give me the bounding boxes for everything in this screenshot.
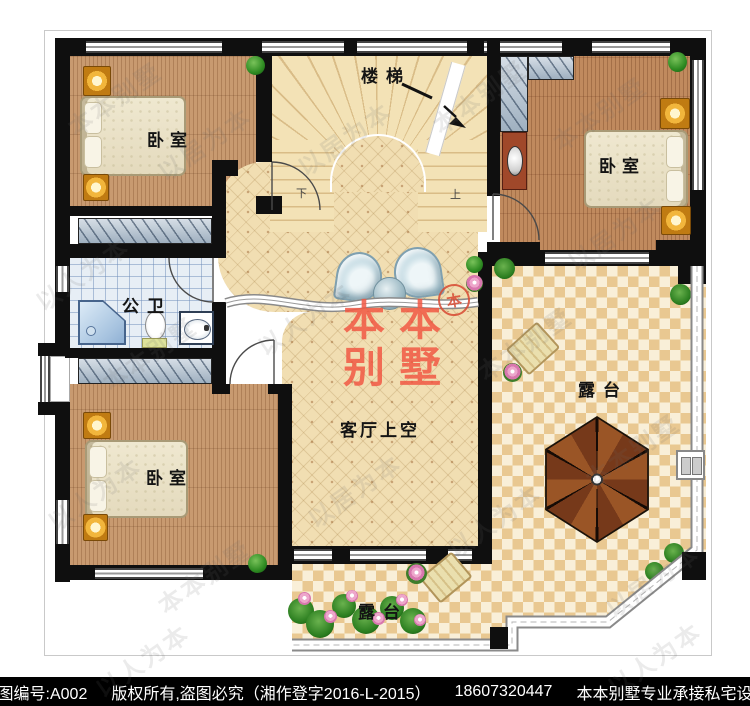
closet-strip-north [78,218,212,244]
wall-pier-terrace-ne2 [678,258,706,284]
copyright-notice: 版权所有,盗图必究（湘作登字2016-L-2015） [111,680,430,704]
nightstand-lamp [83,412,111,439]
pillow [89,480,107,512]
room-label-bedroom: 卧室 [129,464,209,489]
pillow [666,170,684,202]
window-terrace-north [545,252,649,264]
bay-window-glass [40,356,50,402]
window-top-1 [86,41,222,53]
sink-faucet [204,325,209,331]
company-slogan: 本本别墅专业承接私宅设计 [576,680,750,704]
side-table-flower [406,563,427,584]
closet-vertical [500,56,528,132]
outdoor-unit [676,450,705,480]
stair-mark-up: 上 [450,186,461,202]
wall-bath-east-lower [212,302,226,386]
phone-number: 18607320447 [455,683,553,701]
stair-mark-down: 下 [296,185,307,201]
floor-plan-sheet: 楼梯 卧室 卧室 卧室 公卫 客厅上空 露台 露台 下 上 本本别墅以居为本以人… [0,0,750,706]
potted-plant [668,52,687,72]
bay-window-bottom [38,402,70,415]
closet-horizontal [528,56,574,80]
window-top-3 [357,41,467,53]
pillow [666,136,684,168]
pillow [89,446,107,478]
potted-plant [246,56,265,75]
window-top-2 [262,41,344,53]
wall-bedroom2-west [487,38,500,196]
window-void-south-2 [350,549,426,561]
room-label-bedroom: 卧室 [130,126,210,151]
dresser-bowl [507,146,523,176]
pillow [84,102,102,134]
wall-bedroom1-south [65,206,214,216]
window-right-bedroom [692,60,704,190]
window-top-5 [592,41,670,53]
nightstand-lamp [83,174,109,201]
wall-bedroom3-north-a [212,384,230,394]
flower-pot [466,275,483,292]
brand-logo-line2: 别墅 [322,344,462,392]
nightstand-lamp [83,514,108,541]
room-label-bathroom: 公卫 [107,292,187,317]
small-plant [466,256,483,273]
drawing-number: 本图编号:A002 [0,680,87,704]
pillow [84,136,102,168]
room-label-terrace: 露台 [560,376,646,401]
room-label-bedroom: 卧室 [582,152,662,177]
brand-logo-watermark: 本本 别墅 [322,298,462,392]
wall-void-east [478,252,492,564]
toilet-cistern [142,338,167,348]
copyright-bar: 本图编号:A002 版权所有,盗图必究（湘作登字2016-L-2015） 186… [0,677,750,706]
nightstand-lamp [660,98,690,129]
wall-bath-east-upper [212,160,226,258]
window-left-bath [56,266,69,292]
terrace-plant [645,562,664,581]
closet-strip-south [78,358,212,384]
wall-bath-south [65,348,214,358]
room-label-living-void: 客厅上空 [318,416,442,441]
bay-window-sill [50,356,70,402]
side-table-flower [503,363,522,382]
nightstand-lamp [83,66,111,96]
wall-pier [256,196,282,214]
window-left-bedroom [56,500,69,544]
railing-pier-corner [682,552,706,580]
brand-stamp-char: 本 [445,288,463,311]
railing-pier-jog [490,627,508,649]
floor-plan: 楼梯 卧室 卧室 卧室 公卫 客厅上空 露台 露台 下 上 本本别墅以居为本以人… [0,0,750,677]
terrace-plant [664,543,684,563]
wall-bedroom3-east [278,392,292,568]
parasol-table [538,416,656,543]
potted-plant [248,554,267,573]
terrace-plant [494,258,515,279]
window-void-south-1 [294,549,332,561]
room-label-terrace: 露台 [340,598,426,623]
window-bedroom3-south [95,568,203,579]
terrace-plant [670,284,691,305]
nightstand-lamp [661,206,691,235]
room-label-stairs: 楼梯 [346,62,426,87]
wall-bath-north [65,244,214,258]
